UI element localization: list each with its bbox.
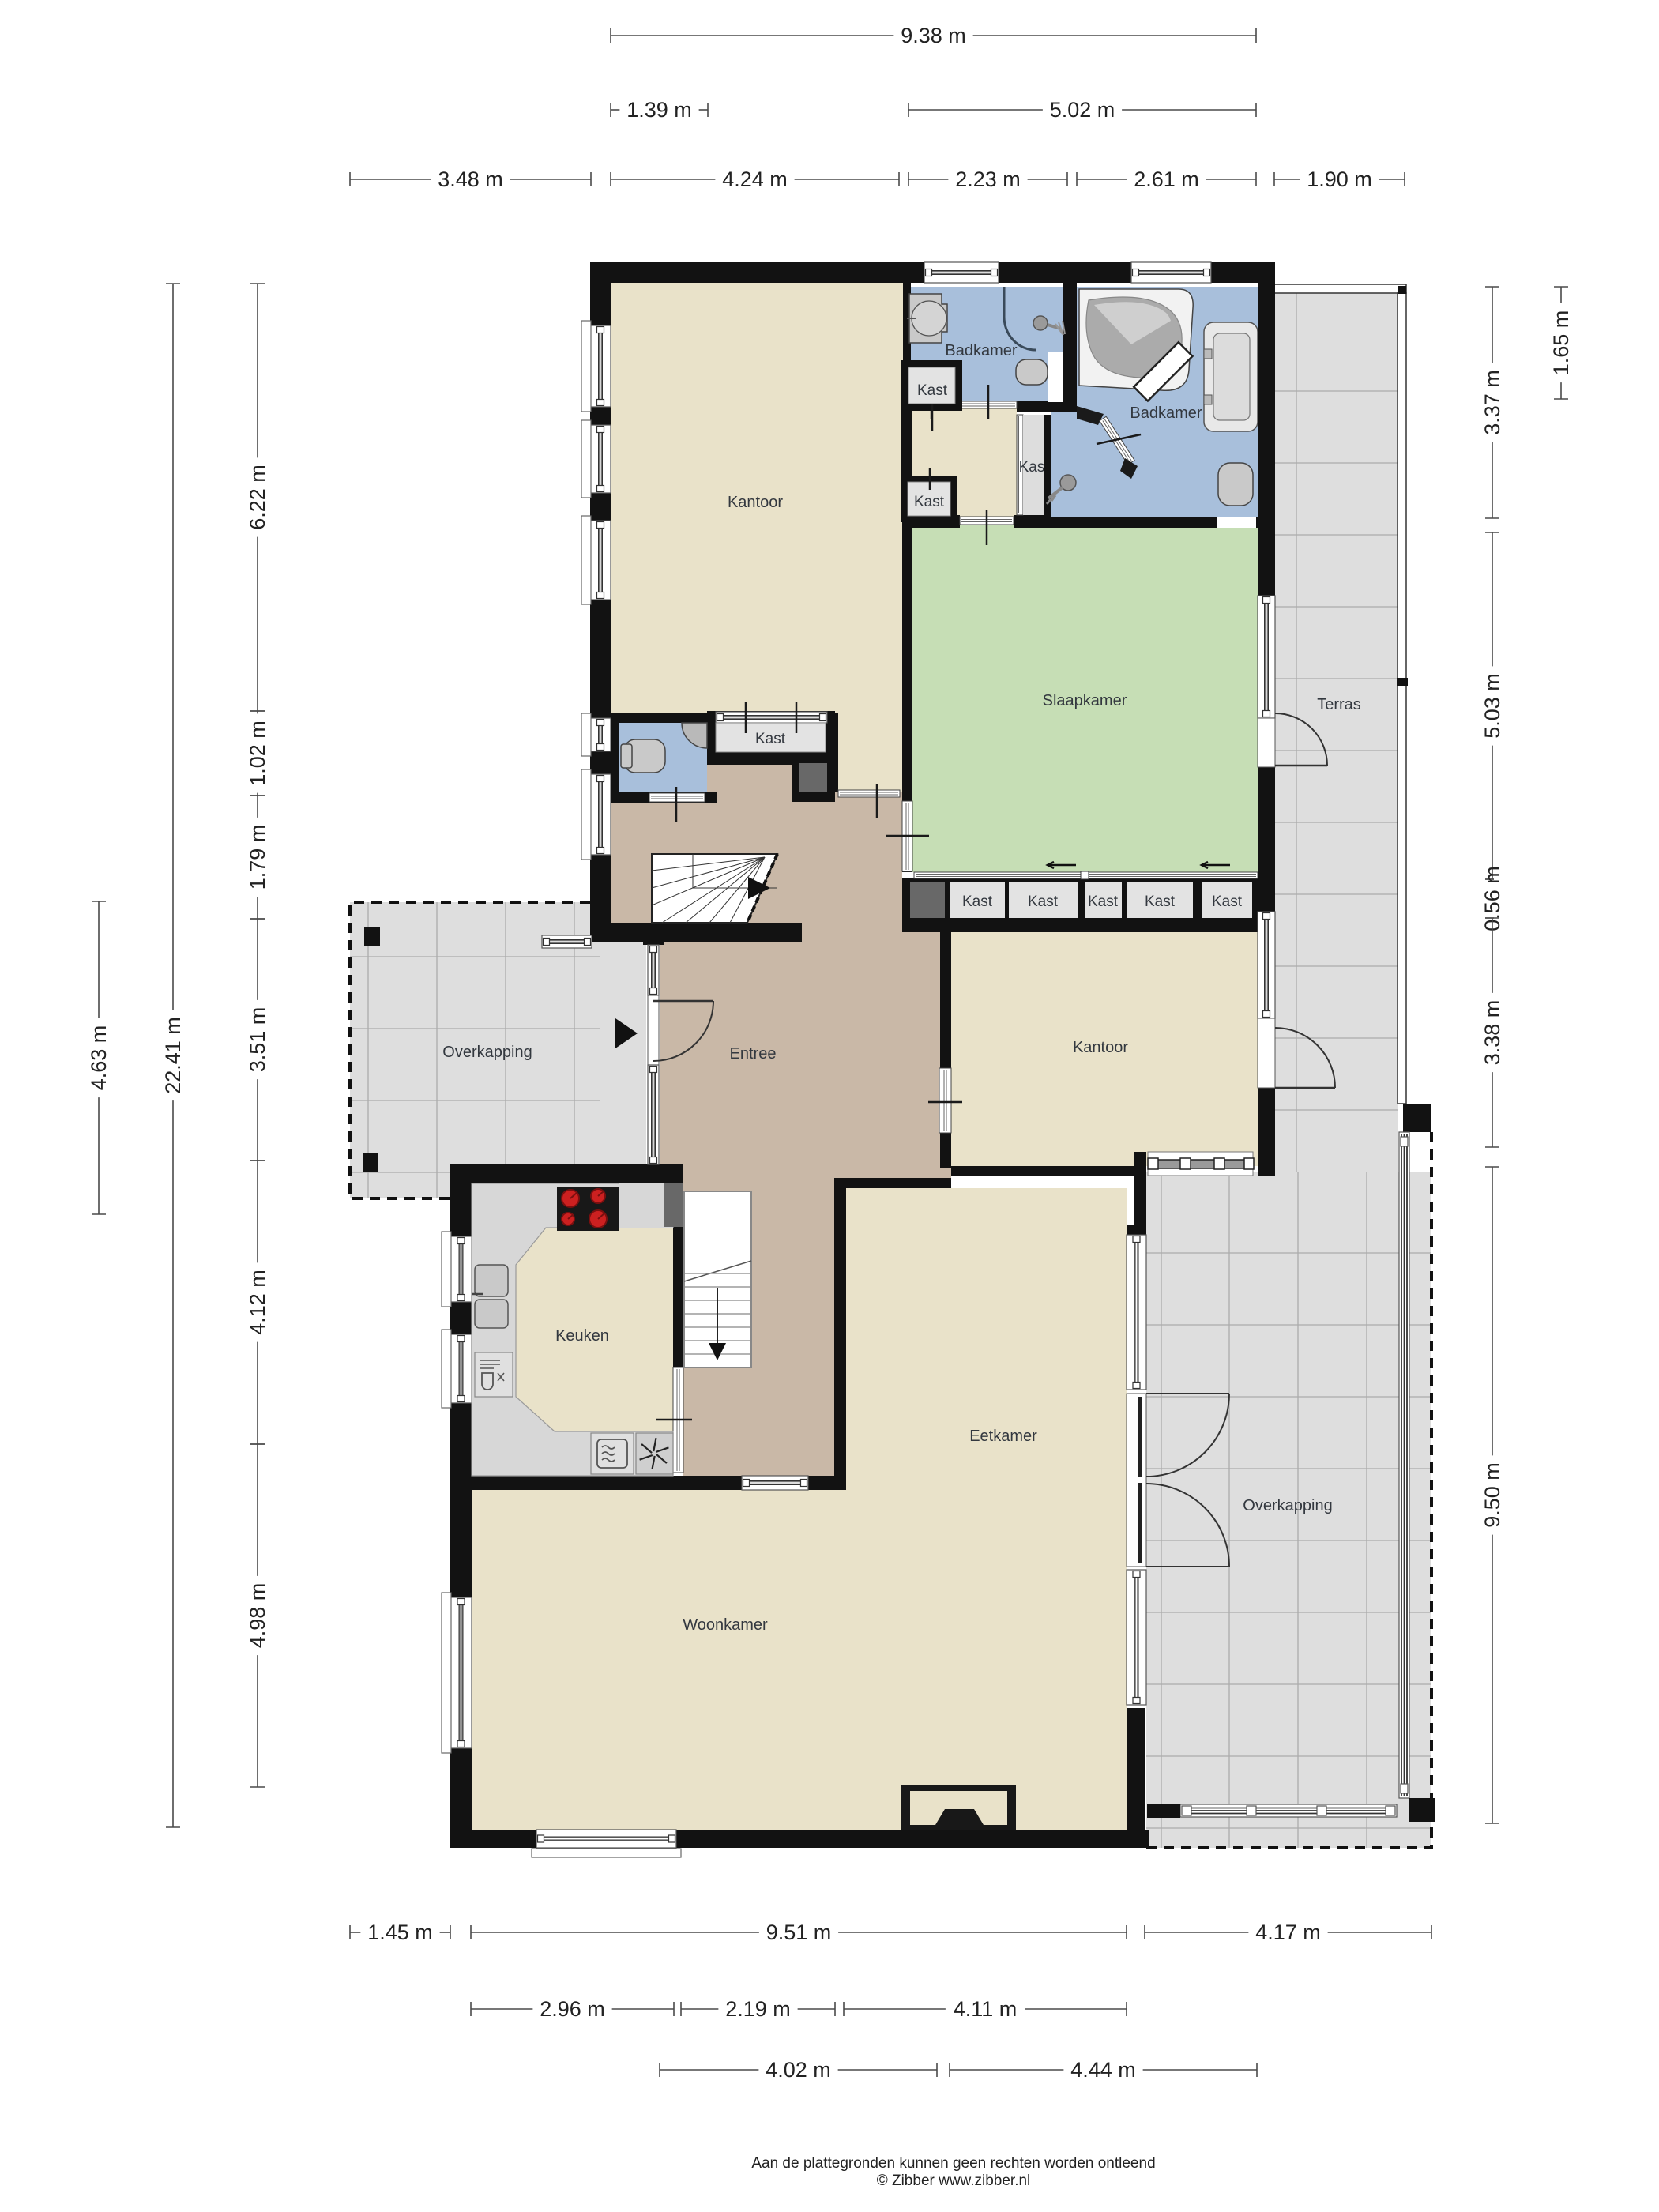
svg-text:5.03 m: 5.03 m xyxy=(1480,673,1504,739)
svg-text:Badkamer: Badkamer xyxy=(945,342,1017,359)
svg-text:1.65 m: 1.65 m xyxy=(1549,310,1573,376)
svg-text:Kast: Kast xyxy=(917,382,948,399)
svg-text:4.44 m: 4.44 m xyxy=(1070,2058,1136,2082)
svg-text:3.51 m: 3.51 m xyxy=(246,1007,269,1073)
svg-text:Kantoor: Kantoor xyxy=(1073,1039,1128,1056)
svg-text:Eetkamer: Eetkamer xyxy=(969,1428,1037,1445)
svg-text:Kast: Kast xyxy=(962,893,993,910)
svg-text:1.45 m: 1.45 m xyxy=(367,1920,433,1944)
svg-text:4.24 m: 4.24 m xyxy=(722,167,788,191)
svg-text:3.38 m: 3.38 m xyxy=(1480,1000,1504,1066)
svg-text:9.50 m: 9.50 m xyxy=(1480,1462,1504,1528)
svg-text:1.90 m: 1.90 m xyxy=(1307,167,1372,191)
svg-text:4.11 m: 4.11 m xyxy=(954,1997,1018,2021)
svg-text:4.12 m: 4.12 m xyxy=(246,1270,269,1335)
svg-text:5.02 m: 5.02 m xyxy=(1050,98,1115,122)
svg-text:2.61 m: 2.61 m xyxy=(1134,167,1199,191)
svg-text:6.22 m: 6.22 m xyxy=(246,465,269,530)
svg-text:3.37 m: 3.37 m xyxy=(1480,370,1504,435)
svg-text:Kast: Kast xyxy=(1028,893,1059,910)
svg-text:4.63 m: 4.63 m xyxy=(87,1025,111,1091)
svg-text:2.96 m: 2.96 m xyxy=(540,1997,605,2021)
svg-text:Woonkamer: Woonkamer xyxy=(683,1616,768,1634)
svg-text:2.19 m: 2.19 m xyxy=(725,1997,791,2021)
svg-text:Entree: Entree xyxy=(730,1045,777,1063)
svg-text:1.79 m: 1.79 m xyxy=(246,825,269,890)
svg-text:Kast: Kast xyxy=(1088,893,1119,910)
svg-text:Kantoor: Kantoor xyxy=(728,494,783,511)
svg-text:Overkapping: Overkapping xyxy=(442,1044,532,1061)
svg-text:Aan de plattegronden kunnen ge: Aan de plattegronden kunnen geen rechten… xyxy=(751,2155,1155,2172)
svg-text:Kas: Kas xyxy=(1019,459,1045,476)
svg-text:4.17 m: 4.17 m xyxy=(1255,1920,1321,1944)
svg-text:Kast: Kast xyxy=(755,731,786,747)
svg-text:Kast: Kast xyxy=(1145,893,1176,910)
svg-text:Kast: Kast xyxy=(1212,893,1243,910)
svg-text:1.39 m: 1.39 m xyxy=(626,98,692,122)
svg-text:Overkapping: Overkapping xyxy=(1243,1497,1332,1514)
svg-text:4.98 m: 4.98 m xyxy=(246,1583,269,1649)
svg-text:Kast: Kast xyxy=(914,494,945,510)
svg-text:22.41 m: 22.41 m xyxy=(161,1017,185,1094)
svg-text:© Zibber www.zibber.nl: © Zibber www.zibber.nl xyxy=(877,2172,1031,2189)
svg-text:3.48 m: 3.48 m xyxy=(438,167,503,191)
svg-text:Slaapkamer: Slaapkamer xyxy=(1043,692,1127,709)
svg-text:Keuken: Keuken xyxy=(555,1327,609,1345)
svg-text:1.02 m: 1.02 m xyxy=(246,720,269,786)
svg-text:4.02 m: 4.02 m xyxy=(766,2058,831,2082)
svg-text:2.23 m: 2.23 m xyxy=(955,167,1021,191)
svg-text:Terras: Terras xyxy=(1317,696,1361,713)
svg-text:Badkamer: Badkamer xyxy=(1130,404,1202,422)
svg-text:9.51 m: 9.51 m xyxy=(766,1920,832,1944)
svg-text:9.38 m: 9.38 m xyxy=(901,24,966,47)
